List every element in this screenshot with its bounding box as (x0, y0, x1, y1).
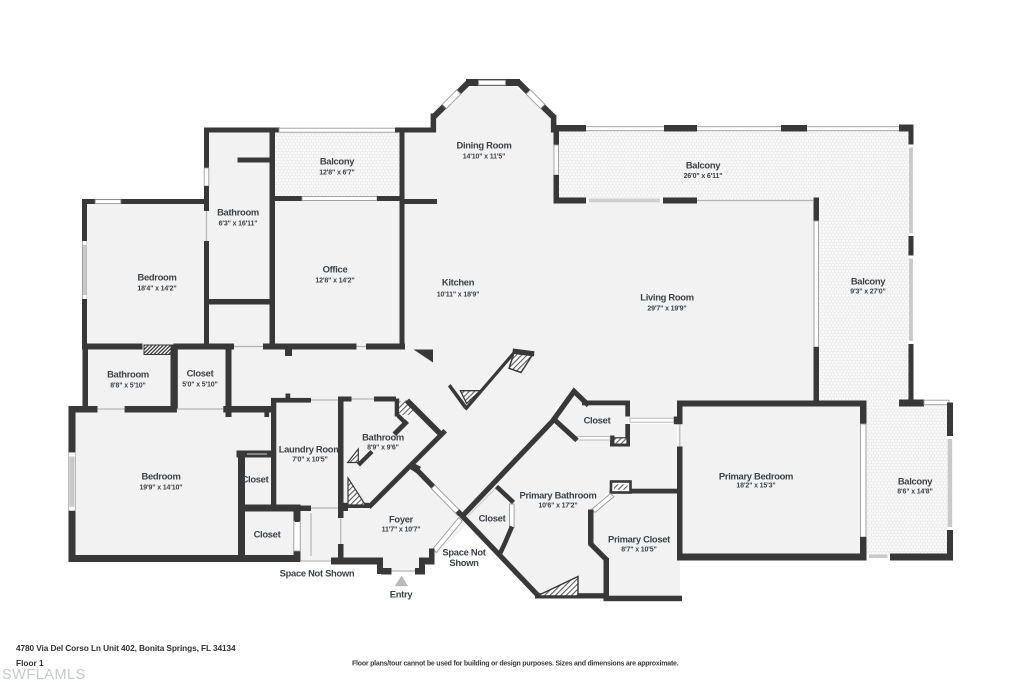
svg-text:Laundry Room: Laundry Room (279, 444, 342, 455)
svg-text:7'0" x 10'5": 7'0" x 10'5" (292, 457, 327, 464)
svg-text:Closet: Closet (187, 368, 214, 379)
svg-text:Living Room: Living Room (640, 292, 693, 303)
svg-text:Floor plans/tour cannot be use: Floor plans/tour cannot be used for buil… (352, 661, 679, 668)
svg-text:Kitchen: Kitchen (442, 277, 475, 288)
svg-text:Primary Closet: Primary Closet (608, 534, 670, 545)
svg-text:Bedroom: Bedroom (137, 272, 176, 283)
svg-text:Balcony: Balcony (851, 276, 886, 287)
svg-text:8'6" x 14'8": 8'6" x 14'8" (897, 489, 932, 496)
svg-text:Space Not Shown: Space Not Shown (280, 568, 355, 579)
svg-text:26'0" x 6'11": 26'0" x 6'11" (684, 173, 723, 180)
svg-text:Balcony: Balcony (898, 476, 933, 487)
svg-text:10'6" x 17'2": 10'6" x 17'2" (538, 503, 577, 510)
svg-text:4780 Via Del Corso Ln Unit 402: 4780 Via Del Corso Ln Unit 402, Bonita S… (16, 643, 236, 653)
svg-text:12'8" x 6'7": 12'8" x 6'7" (319, 170, 354, 177)
svg-text:Balcony: Balcony (686, 160, 721, 171)
svg-text:19'9" x 14'10": 19'9" x 14'10" (140, 485, 183, 492)
svg-text:Entry: Entry (390, 589, 414, 600)
svg-text:9'3" x 27'0": 9'3" x 27'0" (850, 289, 885, 296)
svg-text:8'8" x 5'10": 8'8" x 5'10" (110, 383, 145, 390)
svg-text:29'7" x 19'9": 29'7" x 19'9" (647, 306, 686, 313)
svg-text:12'8" x 14'2": 12'8" x 14'2" (315, 278, 354, 285)
svg-text:Primary Bedroom: Primary Bedroom (719, 471, 793, 482)
svg-text:14'10" x 11'5": 14'10" x 11'5" (463, 154, 506, 161)
svg-text:Primary Bathroom: Primary Bathroom (520, 490, 597, 501)
svg-text:SWFLAMLS: SWFLAMLS (2, 667, 86, 682)
svg-text:Bathroom: Bathroom (362, 432, 404, 443)
svg-text:8'7" x 10'5": 8'7" x 10'5" (621, 547, 656, 554)
svg-text:18'4" x 14'2": 18'4" x 14'2" (137, 286, 176, 293)
svg-text:Dining Room: Dining Room (456, 140, 511, 151)
svg-text:6'3" x 16'11": 6'3" x 16'11" (219, 221, 258, 228)
svg-text:Closet: Closet (242, 474, 269, 485)
svg-text:Bedroom: Bedroom (141, 471, 180, 482)
svg-text:Shown: Shown (449, 557, 479, 568)
svg-text:10'11" x 18'9": 10'11" x 18'9" (437, 292, 480, 299)
svg-text:Closet: Closet (584, 415, 611, 426)
svg-text:Bathroom: Bathroom (217, 207, 259, 218)
svg-text:8'9" x 9'6": 8'9" x 9'6" (367, 445, 399, 452)
svg-text:Bathroom: Bathroom (107, 369, 149, 380)
svg-text:Foyer: Foyer (389, 514, 414, 525)
svg-text:5'0" x 5'10": 5'0" x 5'10" (182, 382, 217, 389)
svg-text:Office: Office (323, 264, 348, 275)
svg-text:Closet: Closet (254, 529, 281, 540)
svg-text:11'7" x 10'7": 11'7" x 10'7" (382, 527, 421, 534)
svg-text:Balcony: Balcony (320, 156, 355, 167)
svg-text:18'2" x 15'3": 18'2" x 15'3" (736, 483, 775, 490)
svg-text:Closet: Closet (479, 513, 506, 524)
svg-text:Space Not: Space Not (442, 547, 485, 558)
